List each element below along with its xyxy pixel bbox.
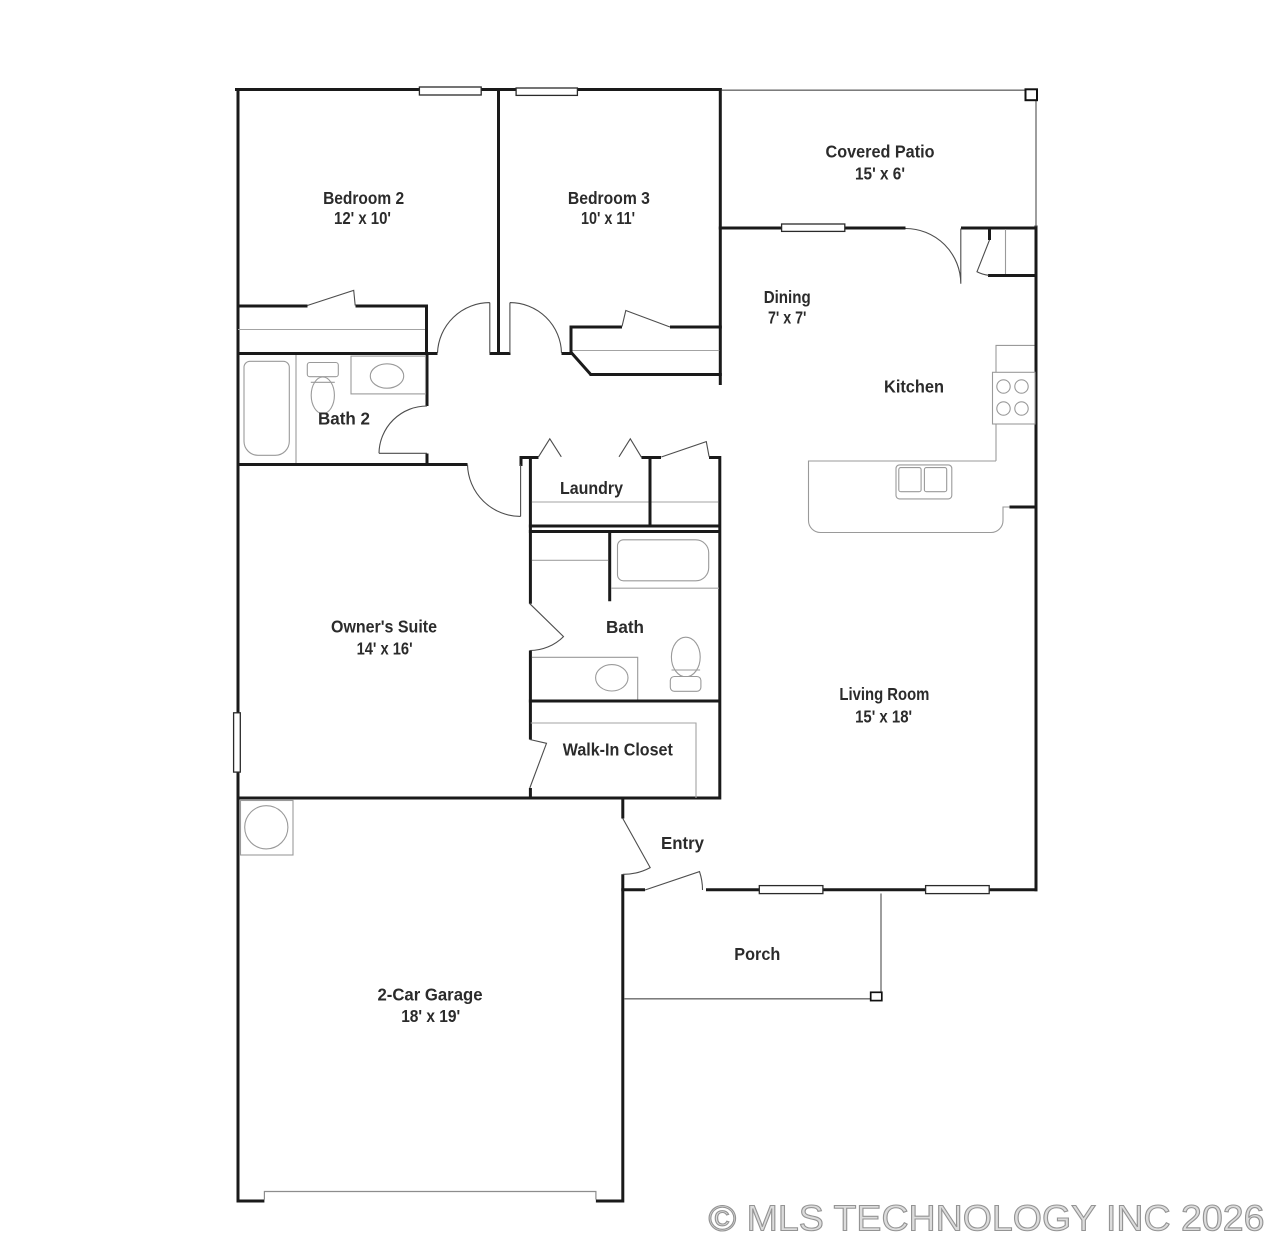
svg-text:Living Room: Living Room: [839, 684, 929, 704]
svg-text:Bath: Bath: [606, 617, 644, 637]
svg-text:© MLS TECHNOLOGY INC 2026: © MLS TECHNOLOGY INC 2026: [709, 1198, 1265, 1239]
svg-text:Bath 2: Bath 2: [318, 409, 370, 429]
svg-text:14' x 16': 14' x 16': [357, 639, 413, 659]
svg-text:Laundry: Laundry: [560, 478, 623, 498]
svg-text:10' x 11': 10' x 11': [581, 208, 635, 228]
svg-text:Kitchen: Kitchen: [884, 377, 944, 397]
svg-text:Bedroom 2: Bedroom 2: [323, 188, 404, 208]
svg-text:7' x 7': 7' x 7': [768, 308, 807, 328]
svg-text:Entry: Entry: [661, 833, 704, 853]
svg-text:12' x 10': 12' x 10': [334, 208, 391, 228]
svg-text:Covered Patio: Covered Patio: [826, 142, 935, 162]
svg-text:15' x 18': 15' x 18': [855, 707, 912, 727]
svg-text:Bedroom 3: Bedroom 3: [568, 188, 650, 208]
svg-text:Porch: Porch: [734, 944, 780, 964]
svg-text:Owner's Suite: Owner's Suite: [331, 617, 437, 637]
svg-text:Dining: Dining: [764, 287, 811, 307]
svg-text:Walk-In Closet: Walk-In Closet: [563, 740, 673, 760]
svg-text:2-Car Garage: 2-Car Garage: [378, 985, 483, 1005]
svg-text:18' x 19': 18' x 19': [401, 1006, 460, 1026]
svg-text:15' x 6': 15' x 6': [855, 164, 905, 184]
